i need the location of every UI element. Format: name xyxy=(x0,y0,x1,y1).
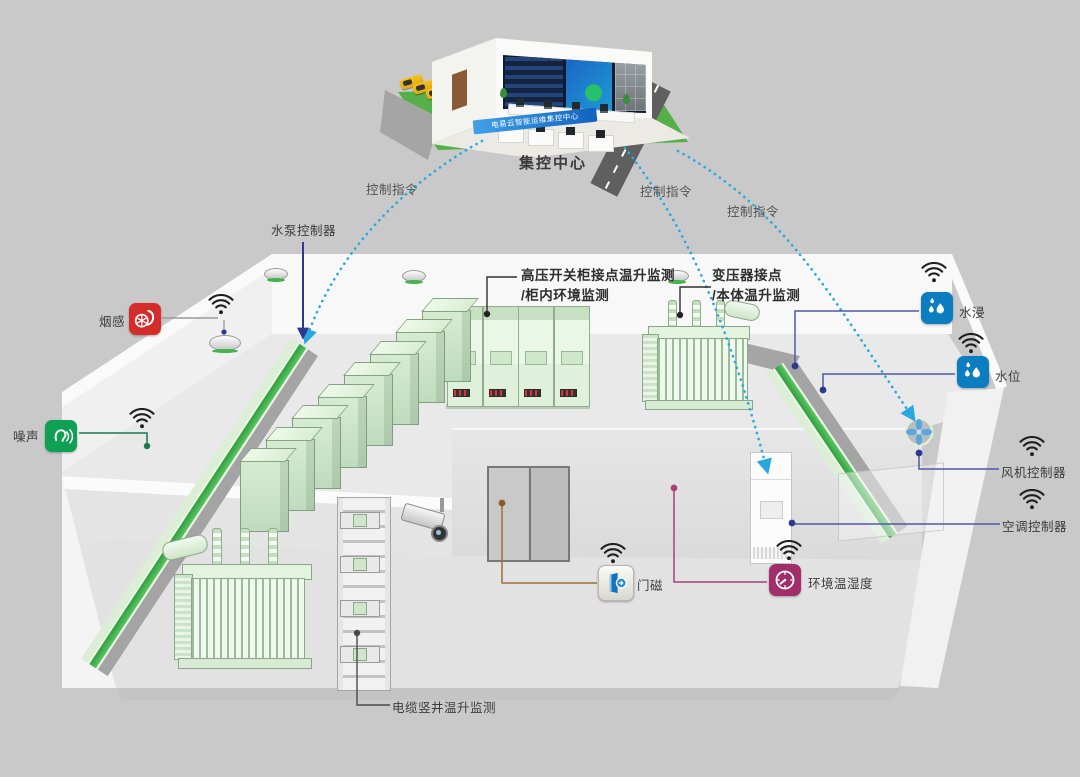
water-immersion-icon xyxy=(921,292,953,324)
wifi-icon-env xyxy=(774,540,804,563)
water-level-label: 水位 xyxy=(995,366,1021,385)
water-pump-controller-label: 水泵控制器 xyxy=(271,220,336,239)
noise-leader-line xyxy=(79,433,147,443)
ac-controller-anchor-dot xyxy=(789,520,796,527)
env-temp-humidity-label: 环境温湿度 xyxy=(808,573,873,592)
smoke-leader-line xyxy=(162,318,224,329)
door-magnet-icon xyxy=(598,565,634,601)
command-label-3: 控制指令 xyxy=(727,201,779,220)
control-center-label: 集控中心 xyxy=(519,152,587,173)
water-immersion-leader-line xyxy=(795,311,919,363)
transformer-leader-line xyxy=(680,287,711,312)
connector-lines-overlay xyxy=(0,0,1080,777)
noise-sensor-icon xyxy=(45,420,77,452)
wifi-icon-ac-controller xyxy=(1017,489,1047,512)
water-level-icon xyxy=(957,356,989,388)
hv-cabinet-label-line2: /柜内环境监测 xyxy=(521,284,609,304)
hv-cabinet-label-line1: 高压开关柜接点温升监测 xyxy=(521,264,675,284)
env-anchor-dot xyxy=(671,485,678,492)
cable-shaft-anchor-dot xyxy=(354,630,360,636)
door-magnet-label: 门磁 xyxy=(637,575,663,594)
transformer-anchor-dot xyxy=(677,312,683,318)
water-level-anchor-dot xyxy=(820,387,827,394)
cable-shaft-leader-line xyxy=(357,636,390,705)
door-magnet-anchor-dot xyxy=(499,500,506,507)
cable-shaft-label: 电缆竖井温升监测 xyxy=(392,697,496,716)
env-leader-line xyxy=(674,491,767,582)
transformer-label-line1: 变压器接点 xyxy=(712,264,782,284)
water-immersion-anchor-dot xyxy=(792,363,799,370)
hv-leader-line xyxy=(487,277,517,311)
fan-controller-label: 风机控制器 xyxy=(1001,462,1066,481)
fan-controller-leader-line xyxy=(919,456,999,469)
command-curve-left xyxy=(306,141,482,340)
command-label-2: 控制指令 xyxy=(640,181,692,200)
command-label-1: 控制指令 xyxy=(366,179,418,198)
wifi-icon-door-magnet xyxy=(598,543,628,566)
fan-controller-anchor-dot xyxy=(916,450,923,457)
noise-anchor-dot xyxy=(144,443,150,449)
wifi-icon-water-level xyxy=(956,333,986,356)
wifi-icon-fan-controller xyxy=(1017,436,1047,459)
wifi-icon-smoke xyxy=(206,294,236,317)
smart-substation-monitoring-diagram: 电易云智能运维集控中心 xyxy=(0,0,1080,777)
door-magnet-leader-line xyxy=(502,506,597,583)
smoke-sensor-icon xyxy=(129,303,161,335)
noise-label: 噪声 xyxy=(13,426,39,445)
water-immersion-label: 水浸 xyxy=(959,302,985,321)
wifi-icon-water-immersion xyxy=(919,262,949,285)
ac-controller-label: 空调控制器 xyxy=(1002,516,1067,535)
smoke-label: 烟感 xyxy=(99,311,125,330)
wifi-icon-noise xyxy=(127,408,157,431)
hv-anchor-dot xyxy=(484,311,490,317)
transformer-label-line2: /本体温升监测 xyxy=(712,284,800,304)
smoke-anchor-dot xyxy=(221,329,226,334)
env-temp-humidity-icon xyxy=(769,564,801,596)
